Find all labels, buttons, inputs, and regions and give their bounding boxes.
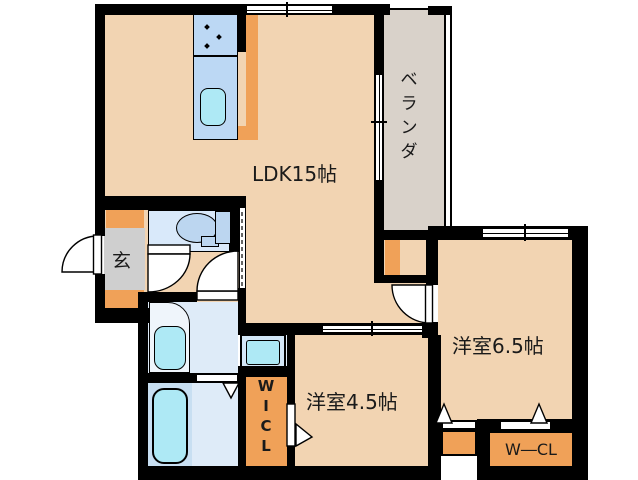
veranda-char-4: ダ: [396, 140, 422, 164]
wicl-char-4: L: [255, 436, 277, 456]
wicl-label: W I C L: [255, 376, 277, 456]
room45-label: 洋室4.5帖: [306, 386, 398, 415]
veranda-char-1: ベ: [396, 68, 422, 92]
entrance-door-leaf: [94, 235, 102, 274]
wicl-door-leaf: [287, 404, 295, 446]
toilet-door-arc: [148, 254, 190, 292]
veranda-char-3: ン: [396, 116, 422, 140]
room65-door-arc: [392, 285, 430, 323]
bathroom-folding-door-arrow: [223, 383, 239, 398]
entrance-door-arc: [62, 236, 98, 272]
wicl-char-2: I: [255, 396, 277, 416]
wcl-door-arrow: [531, 404, 547, 423]
room65-label: 洋室6.5帖: [452, 330, 544, 359]
wcl-label: W―CL: [490, 440, 572, 459]
entrance-label: 玄: [112, 246, 131, 273]
washroom-door-leaf: [197, 291, 238, 300]
veranda-label: ベ ラ ン ダ: [396, 68, 422, 164]
veranda-char-2: ラ: [396, 92, 422, 116]
floorplan: LDK15帖 ベ ラ ン ダ 玄 洋室6.5帖 洋室4.5帖 W―CL W I …: [0, 0, 638, 480]
wicl-char-1: W: [255, 376, 277, 396]
wicl-char-3: C: [255, 416, 277, 436]
small-closet-door-arrow: [436, 404, 452, 423]
wicl-folding-door-arrow: [296, 424, 312, 446]
washroom-door-arc: [197, 251, 238, 291]
toilet-door-leaf: [148, 245, 190, 254]
room65-door-leaf: [426, 285, 433, 323]
ldk-label: LDK15帖: [252, 158, 337, 187]
